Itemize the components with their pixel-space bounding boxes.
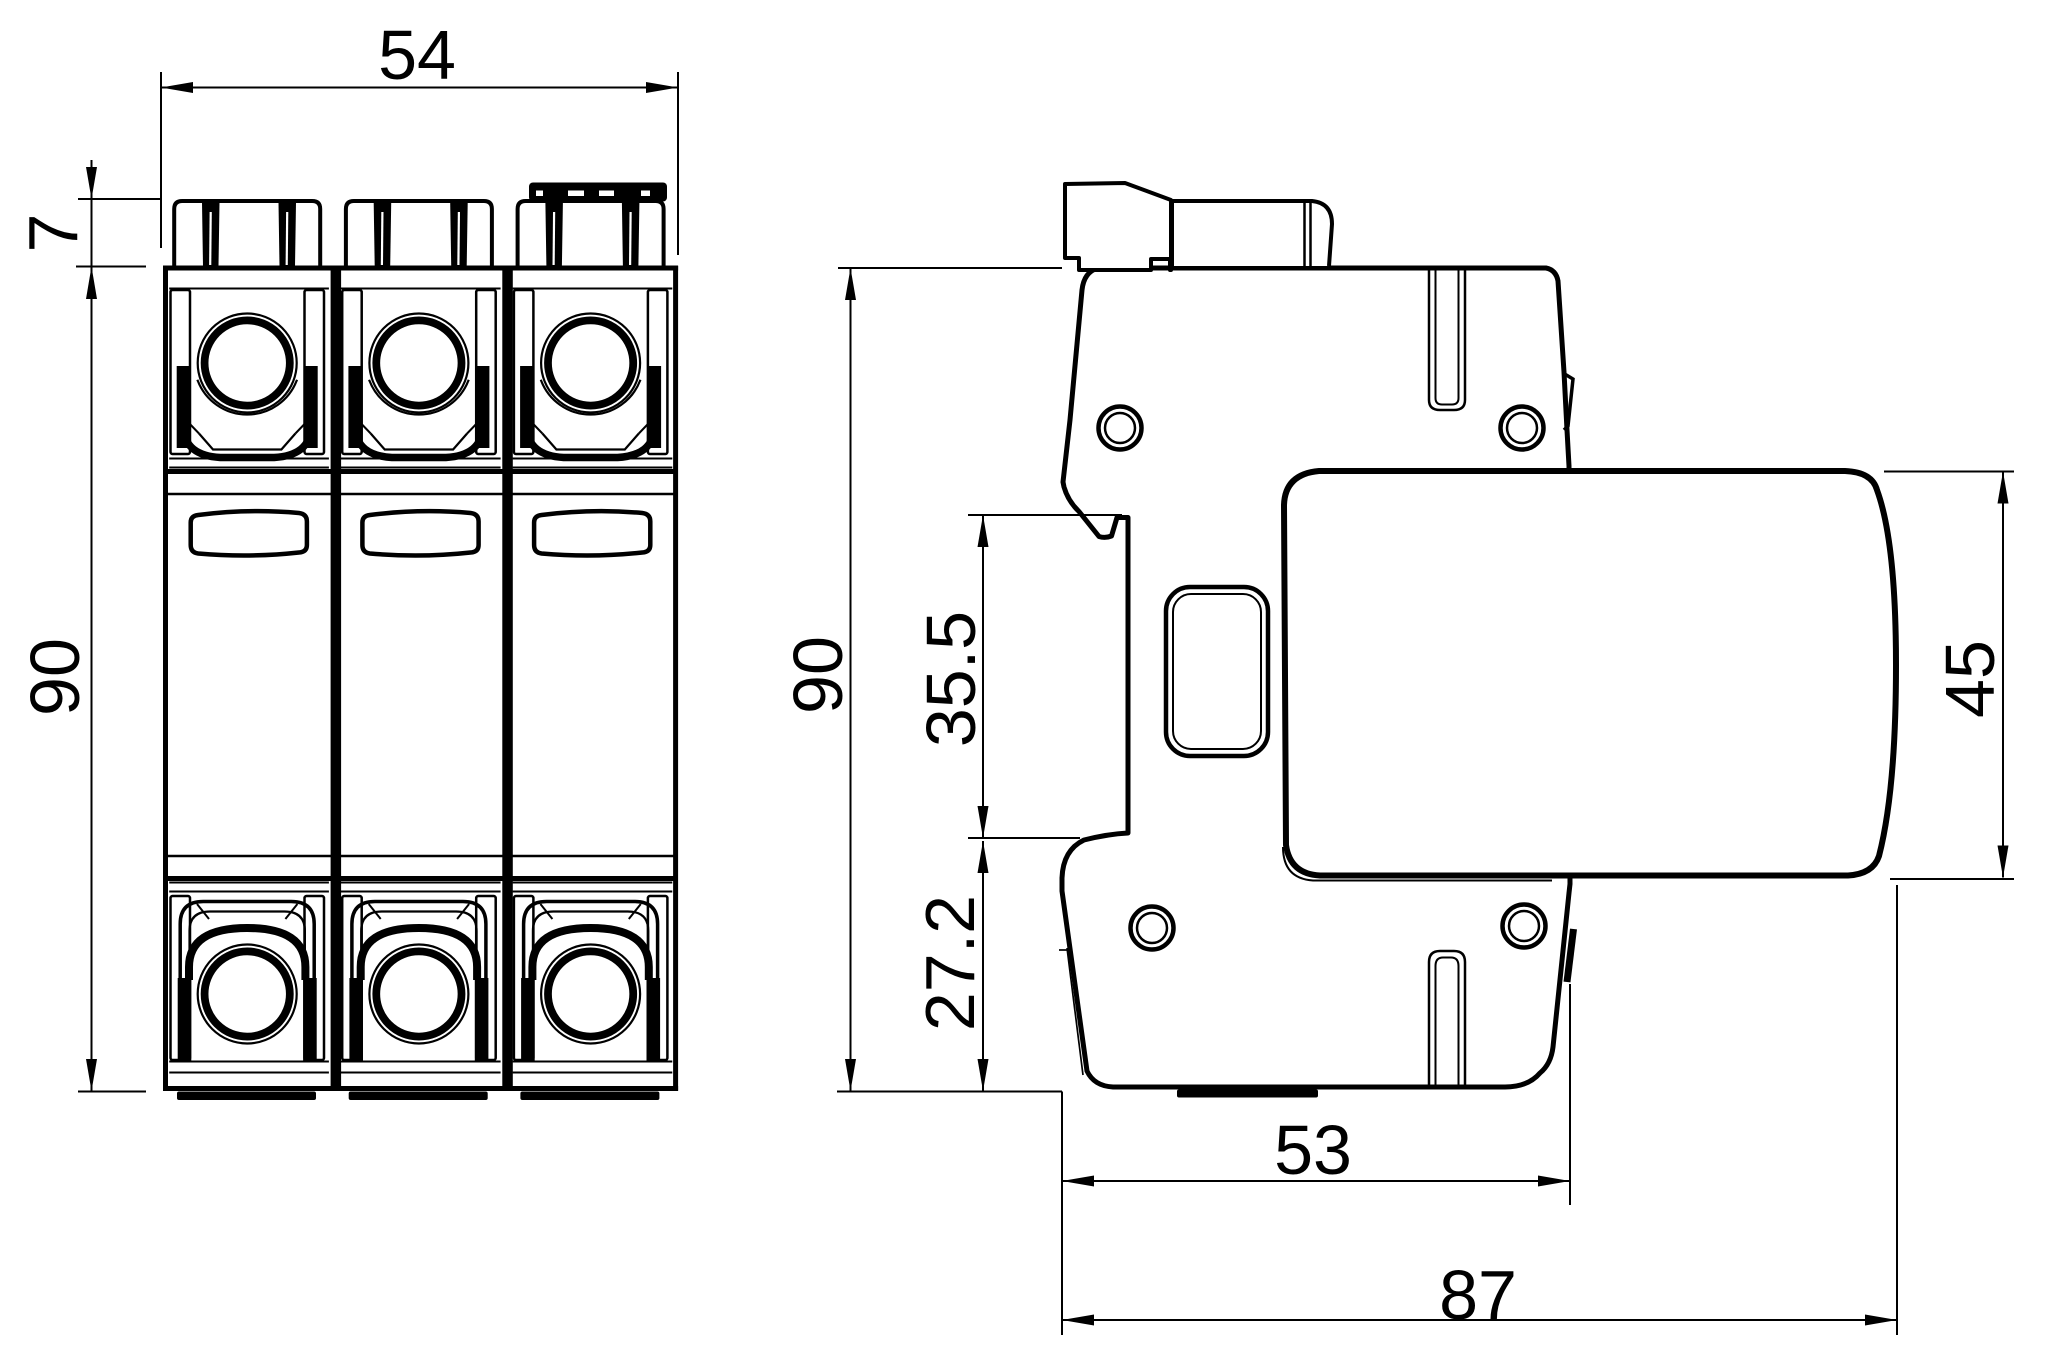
svg-text:27.2: 27.2 xyxy=(911,895,989,1031)
svg-text:90: 90 xyxy=(779,636,857,714)
svg-text:45: 45 xyxy=(1931,640,2009,718)
svg-text:90: 90 xyxy=(16,638,94,716)
svg-text:35.5: 35.5 xyxy=(912,611,990,747)
svg-text:7: 7 xyxy=(14,214,92,253)
svg-text:54: 54 xyxy=(378,16,456,94)
svg-text:53: 53 xyxy=(1274,1111,1352,1189)
svg-text:87: 87 xyxy=(1439,1256,1517,1334)
